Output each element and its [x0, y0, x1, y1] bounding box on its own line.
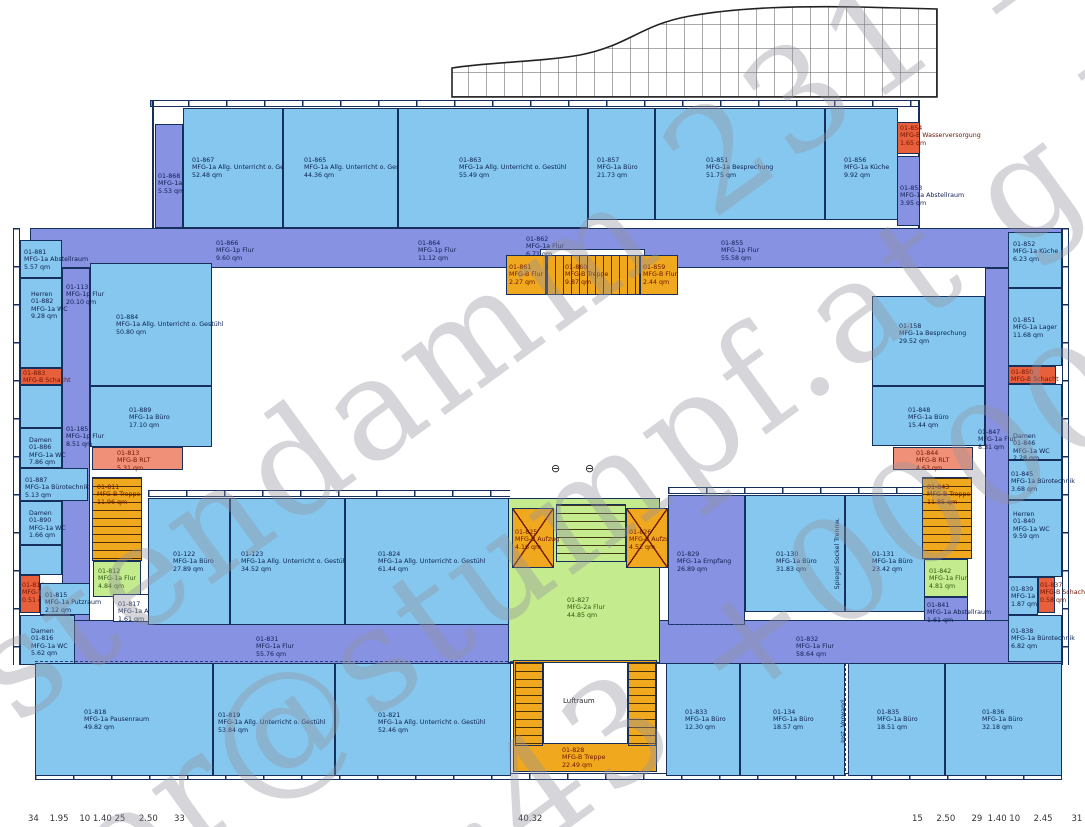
room-01-825: 01-825MFG-B Aufzug4.16 qm: [512, 508, 554, 568]
room-01-824: 01-824MFG-1a Allg. Unterricht o. Gestühl…: [345, 498, 510, 625]
plan-area: [628, 662, 656, 746]
room-01-838: 01-838MFG-1a Bürotechnik6.82 qm: [1008, 615, 1062, 662]
dimension-string-right: 15 2.50 29 1.40 10 2.45 31: [912, 814, 1082, 824]
room-01-884: 01-884MFG-1a Allg. Unterricht o. Gestühl…: [90, 263, 212, 386]
room-01-840: Herren01-840MFG-1a WC9.59 qm: [1008, 500, 1062, 577]
room-01-848: 01-848MFG-1a Büro15.44 qm: [872, 386, 985, 446]
floor-plan: Luftraum stendamm 231 Ber er@stumpf.at g…: [0, 0, 1085, 827]
room-01-846: Damen01-846MFG-1a WC2.28 qm: [1008, 384, 1062, 460]
room-01-134: 01-134MFG-1a Büro18.57 qm: [740, 663, 845, 776]
plan-area: [556, 504, 626, 562]
plan-area: [20, 545, 62, 575]
room-01-863: 01-863MFG-1a Allg. Unterricht o. Gestühl…: [398, 108, 588, 228]
room-01-815: 01-815MFG-1a Putzraum2.12 qm: [40, 583, 90, 615]
room-01-813: 01-813MFG-B RLT5.31 qm: [92, 447, 183, 470]
window-strip-courtyard-right: [668, 487, 935, 494]
room-01-886: Damen01-886MFG-1a WC7.86 qm: [20, 428, 62, 468]
room-01-850: 01-850MFG-B Schacht0.73 qm: [1008, 366, 1056, 384]
room-01-842: 01-842MFG-1a Flur4.81 qm: [924, 559, 968, 597]
room-01-851: 01-851MFG-1a Lager11.68 qm: [1008, 288, 1062, 366]
window-strip-west: [13, 228, 20, 665]
room-01-851: 01-851MFG-1a Besprechung51.75 qm: [655, 108, 825, 220]
room-01-883: 01-883MFG-B Schacht1.51 qm: [20, 368, 62, 385]
dimension-string-center: 40.32: [518, 814, 542, 824]
door-symbol: ⊖: [551, 462, 560, 475]
wall: [152, 100, 154, 228]
room-01-856: 01-856MFG-1a Küche9.92 qm: [825, 108, 898, 220]
plan-area: [515, 662, 543, 746]
annotation: Inst. Vorwand: [840, 700, 847, 743]
room-01-867: 01-867MFG-1a Allg. Unterricht o. Gestühl…: [183, 108, 283, 228]
room-01-818: 01-818MFG-1a Pausenraum49.82 qm: [35, 663, 213, 776]
room-01-819: 01-819MFG-1a Allg. Unterricht o. Gestühl…: [213, 663, 335, 776]
room-01-816: Damen01-816MFG-1a WC5.62 qm: [20, 615, 75, 665]
room-01-861: 01-861MFG-B Flur2.27 qm: [506, 255, 546, 295]
room-01-811: 01-811MFG-B Treppe11.96 qm: [92, 477, 142, 561]
room-01-817: 01-817MFG-1a Abstellraum1.61 qm: [113, 594, 151, 622]
luftraum-label: Luftraum: [563, 697, 595, 705]
room-01-853: 01-853MFG-1a Abstellraum3.95 qm: [897, 156, 920, 226]
room-01-841: 01-841MFG-1a Abstellraum1.61 qm: [924, 597, 968, 621]
room-01-814: 01-814MFG-B Schacht0.51 qm: [20, 575, 40, 613]
room-01-860: 01-860MFG-B Treppe9.87 qm: [546, 255, 640, 295]
door-symbol: ⊖: [585, 462, 594, 475]
room-01-857: 01-857MFG-1a Büro21.73 qm: [588, 108, 655, 220]
room-01-890: Damen01-890MFG-1a WC1.66 qm: [20, 501, 62, 545]
annotation: Spiegel Sockel Trennw.: [834, 518, 841, 589]
room-01-158: 01-158MFG-1a Besprechung29.52 qm: [872, 296, 985, 386]
plan-area: [20, 385, 62, 428]
room-01-865: 01-865MFG-1a Allg. Unterricht o. Gestühl…: [283, 108, 398, 228]
room-01-868: 01-868MFG-1a Abstellraum5.53 qm: [155, 124, 183, 228]
room-01-122: 01-122MFG-1a Büro27.89 qm: [148, 498, 230, 625]
room-01-821: 01-821MFG-1a Allg. Unterricht o. Gestühl…: [335, 663, 511, 776]
room-01-130: 01-130MFG-1a Büro31.83 qm: [745, 495, 845, 612]
room-01-845: 01-845MFG-1a Bürotechnik3.68 qm: [1008, 460, 1062, 500]
room-01-826: 01-826MFG-B Aufzug4.52 qm: [626, 508, 668, 568]
room-01-836: 01-836MFG-1a Büro32.18 qm: [945, 663, 1062, 776]
room-01-123: 01-123MFG-1a Allg. Unterricht o. Gestühl…: [230, 498, 345, 625]
window-strip-north: [150, 100, 920, 107]
room-01-833: 01-833MFG-1a Büro12.30 qm: [666, 663, 740, 776]
window-strip-courtyard-left: [148, 490, 510, 497]
room-01-835: 01-835MFG-1a Büro18.51 qm: [848, 663, 945, 776]
room-01-887: 01-887MFG-1a Bürotechnik5.13 qm: [20, 468, 88, 501]
room-01-889: 01-889MFG-1a Büro17.10 qm: [90, 386, 212, 447]
dimension-string-left: 34 1.95 10 1.40 25 2.50 33: [28, 814, 185, 824]
room-01-812: 01-812MFG-1a Flur4.84 qm: [93, 561, 141, 597]
room-01-837: 01-837MFG-B Schacht0.58 qm: [1038, 577, 1055, 613]
room-01-854: 01-854MFG-B Wasserversorgung1.65 qm: [897, 122, 920, 154]
room-01-843: 01-843MFG-B Treppe11.85 qm: [922, 477, 972, 559]
room-01-839: 01-839MFG-1a WC1.87 qm: [1008, 577, 1038, 615]
room-01-859: 01-859MFG-B Flur2.44 qm: [640, 255, 678, 295]
room-01-882: Herren01-882MFG-1a WC9.28 qm: [20, 278, 62, 368]
room-01-844: 01-844MFG-B RLT4.63 qm: [893, 447, 973, 470]
room-01-852: 01-852MFG-1a Küche6.23 qm: [1008, 232, 1062, 288]
room-01-829: 01-829MFG-1a Empfang26.89 qm: [668, 495, 745, 625]
room-01-881: 01-881MFG-1a Abstellraum5.57 qm: [20, 240, 62, 278]
